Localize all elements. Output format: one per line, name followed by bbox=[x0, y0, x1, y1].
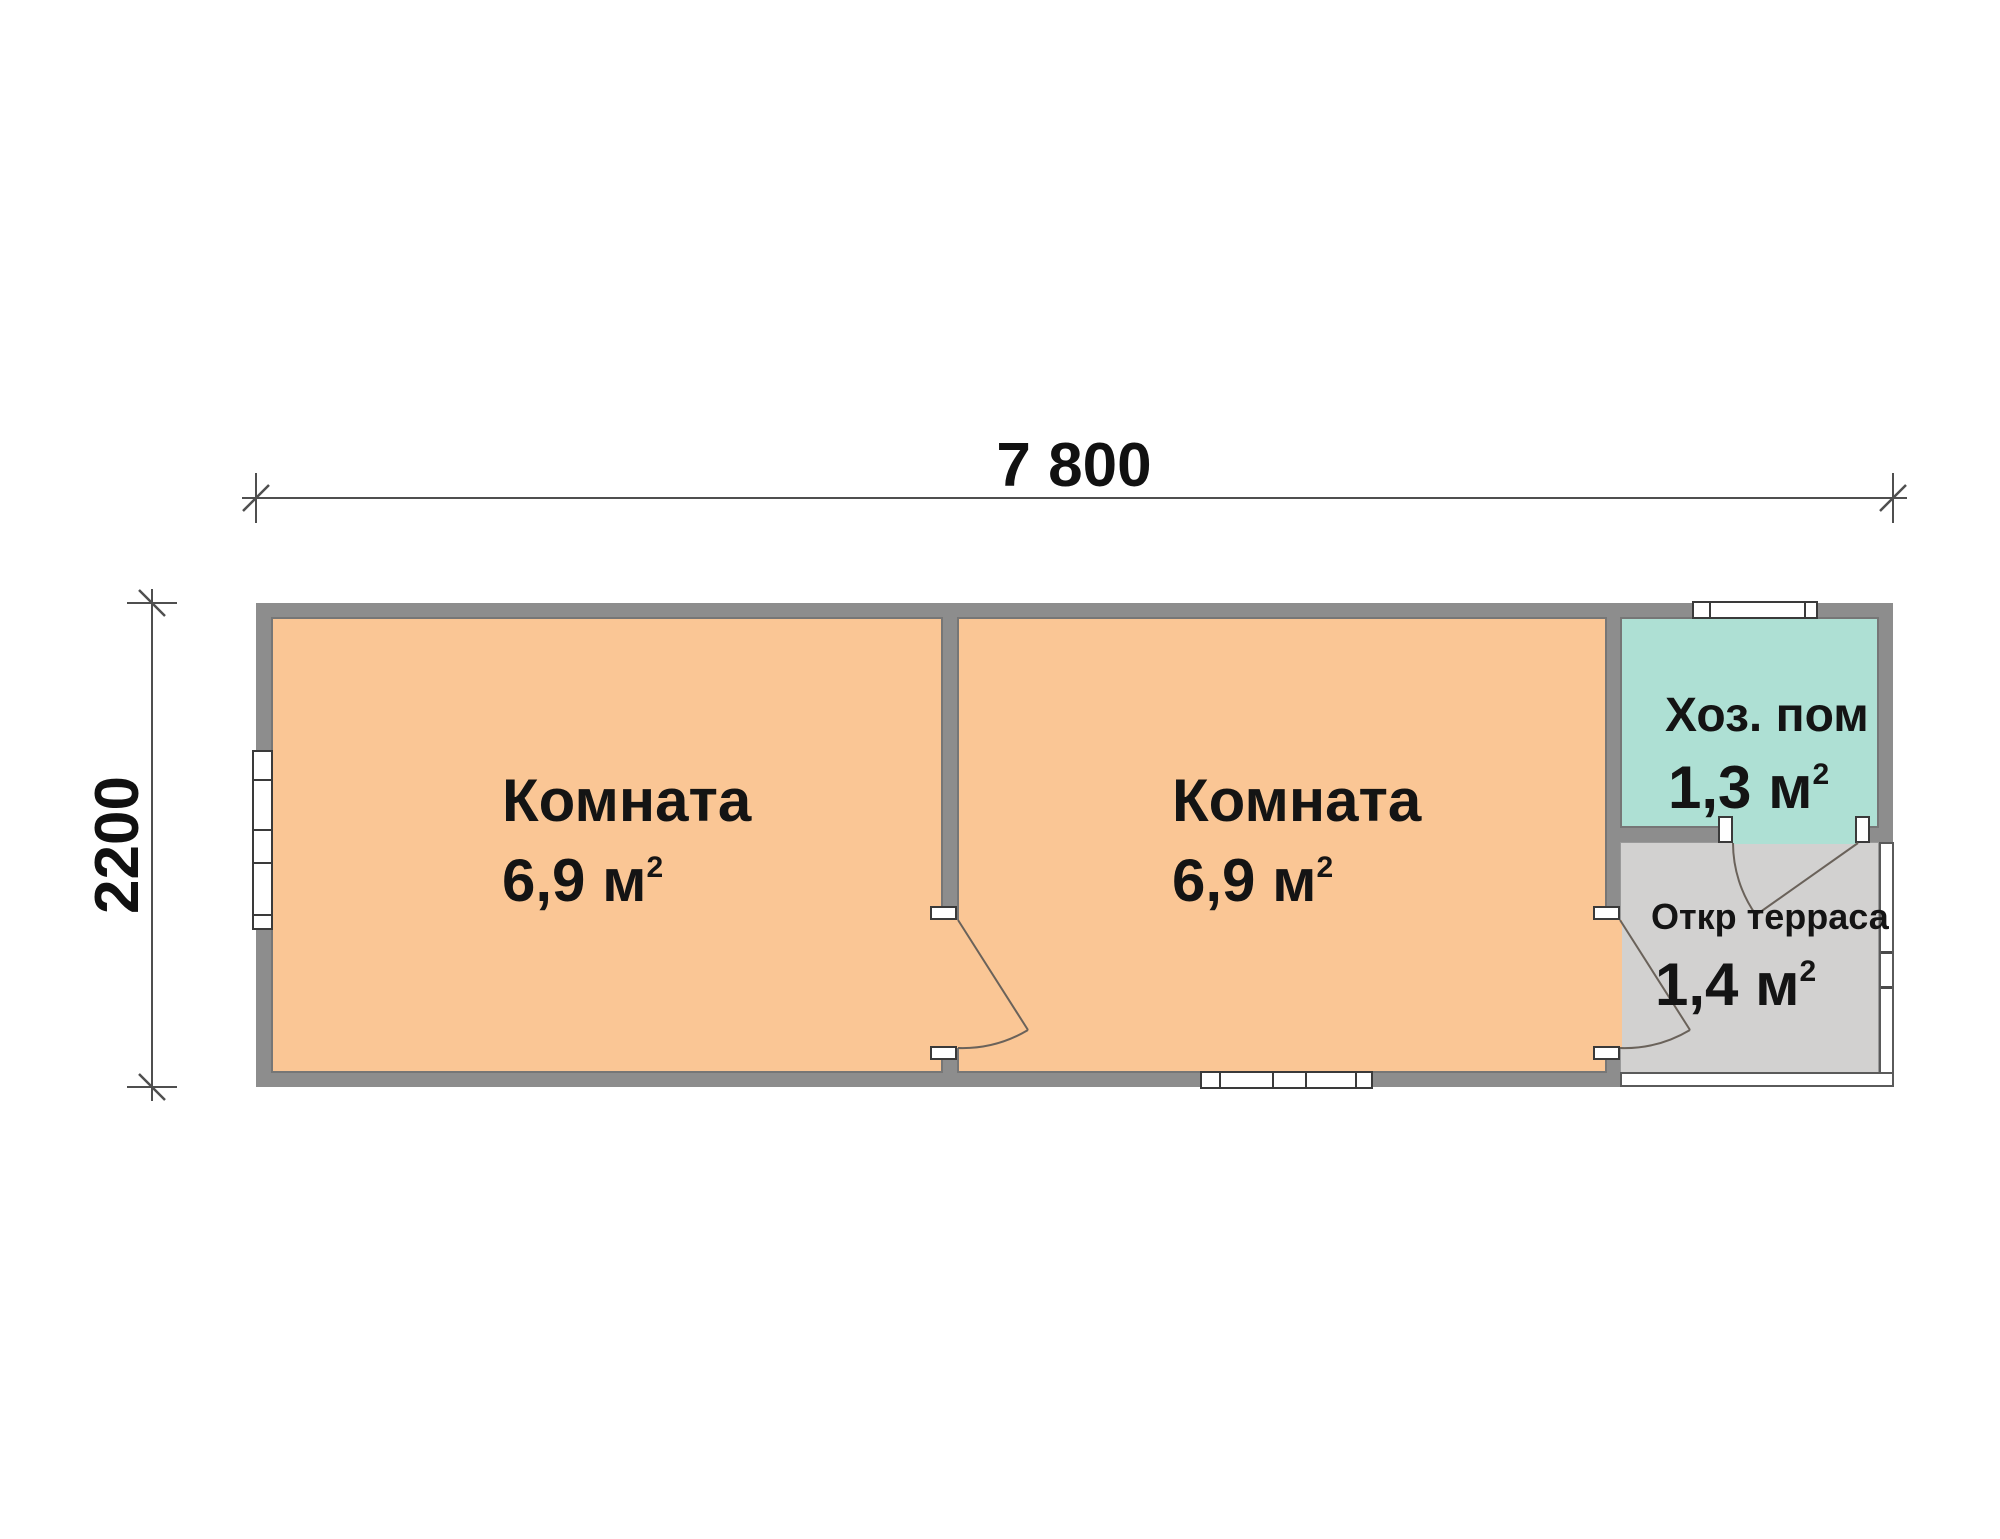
room-1-area-value: 6,9 м bbox=[502, 847, 646, 914]
terrace-area-sup: 2 bbox=[1799, 955, 1816, 988]
room-1-name: Комната bbox=[502, 771, 751, 831]
room-2-area-sup: 2 bbox=[1316, 851, 1333, 884]
utility-room-area: 1,3 м2 bbox=[1668, 758, 1829, 818]
utility-area-sup: 2 bbox=[1812, 758, 1829, 791]
room-2-area: 6,9 м2 bbox=[1172, 851, 1333, 911]
terrace-name: Откр терраса bbox=[1651, 899, 1889, 935]
utility-area-value: 1,3 м bbox=[1668, 754, 1812, 821]
room-1-area: 6,9 м2 bbox=[502, 851, 663, 911]
terrace-area-value: 1,4 м bbox=[1655, 951, 1799, 1018]
dimension-width-label: 7 800 bbox=[996, 435, 1151, 497]
terrace-area: 1,4 м2 bbox=[1655, 955, 1816, 1015]
floor-plan-canvas: 7 800 2200 Комната 6,9 м2 Комната 6,9 м2… bbox=[0, 0, 2000, 1539]
door-swing-room-divider bbox=[958, 920, 1028, 1048]
room-2-name: Комната bbox=[1172, 771, 1421, 831]
utility-room-name: Хоз. пом bbox=[1665, 692, 1869, 740]
dimension-height-label: 2200 bbox=[87, 776, 149, 914]
room-2-area-value: 6,9 м bbox=[1172, 847, 1316, 914]
room-1-area-sup: 2 bbox=[646, 851, 663, 884]
